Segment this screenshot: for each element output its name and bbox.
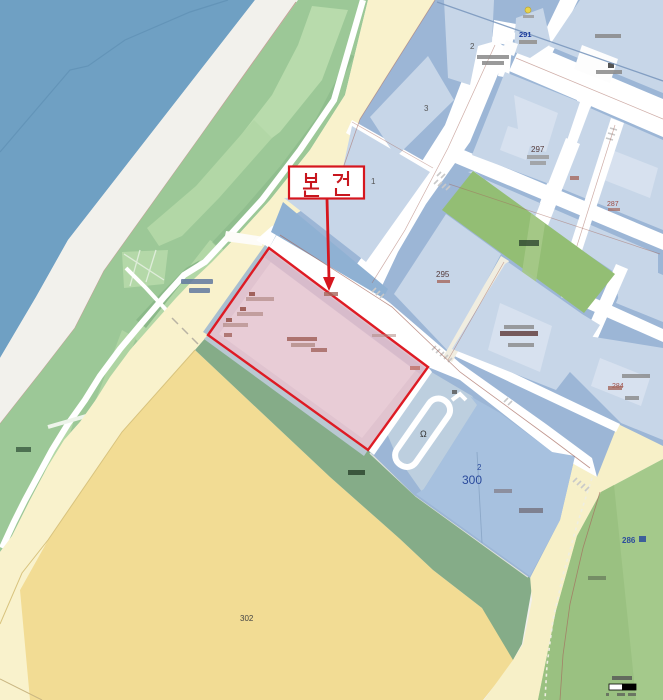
svg-text:2: 2 xyxy=(477,463,482,472)
svg-text:300: 300 xyxy=(462,473,482,487)
svg-text:2: 2 xyxy=(470,42,475,51)
svg-text:Ω: Ω xyxy=(420,429,427,439)
svg-text:295: 295 xyxy=(436,270,450,279)
svg-text:3: 3 xyxy=(424,104,429,113)
svg-text:302: 302 xyxy=(240,614,254,623)
svg-text:1: 1 xyxy=(371,177,376,186)
svg-text:287: 287 xyxy=(607,201,619,208)
svg-text:297: 297 xyxy=(531,145,545,154)
svg-text:286: 286 xyxy=(622,536,636,545)
svg-text:291: 291 xyxy=(519,30,532,39)
